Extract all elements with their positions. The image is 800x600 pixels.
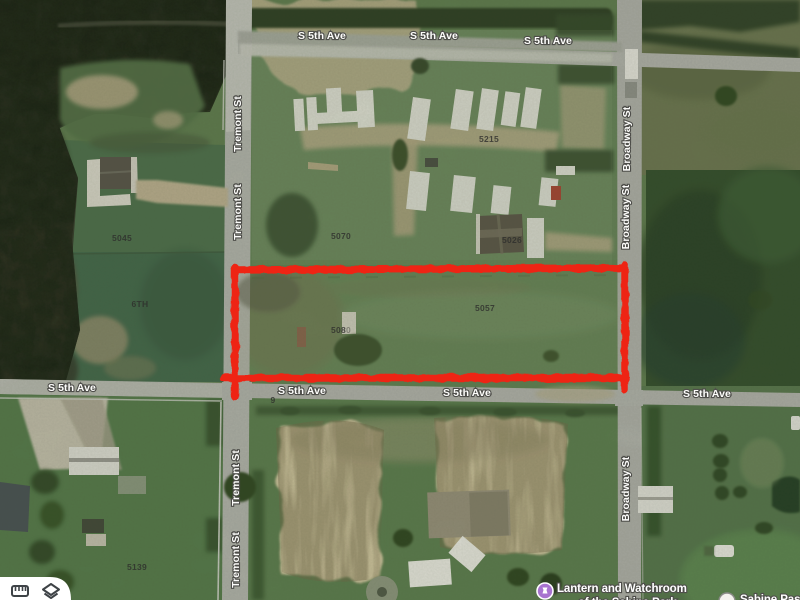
svg-text:9: 9 — [270, 395, 275, 405]
svg-text:S 5th Ave: S 5th Ave — [683, 388, 731, 400]
svg-text:5026: 5026 — [502, 235, 522, 245]
svg-text:Sabine Pass: Sabine Pass — [740, 594, 800, 600]
svg-text:S 5th Ave: S 5th Ave — [48, 382, 96, 394]
svg-text:S 5th Ave: S 5th Ave — [443, 387, 491, 399]
svg-text:5139: 5139 — [127, 562, 147, 572]
svg-text:5080: 5080 — [331, 325, 351, 335]
svg-text:S 5th Ave: S 5th Ave — [524, 35, 572, 47]
svg-text:5070: 5070 — [331, 231, 351, 241]
svg-text:5215: 5215 — [479, 134, 499, 144]
svg-text:Lantern and Watchroom: Lantern and Watchroom — [557, 583, 687, 595]
svg-text:Tremont St: Tremont St — [230, 532, 242, 588]
svg-text:6TH: 6TH — [132, 299, 149, 309]
svg-text:Tremont St: Tremont St — [232, 184, 244, 240]
svg-text:5045: 5045 — [112, 233, 132, 243]
svg-text:Broadway St: Broadway St — [620, 456, 632, 521]
svg-text:Tremont St: Tremont St — [232, 96, 244, 152]
svg-text:Broadway St: Broadway St — [620, 184, 632, 249]
svg-text:S 5th Ave: S 5th Ave — [278, 385, 326, 397]
svg-text:Broadway St: Broadway St — [621, 106, 633, 171]
svg-text:5057: 5057 — [475, 303, 495, 313]
svg-text:S 5th Ave: S 5th Ave — [298, 30, 346, 42]
svg-text:S 5th Ave: S 5th Ave — [410, 30, 458, 42]
svg-text:Tremont St: Tremont St — [230, 450, 242, 506]
